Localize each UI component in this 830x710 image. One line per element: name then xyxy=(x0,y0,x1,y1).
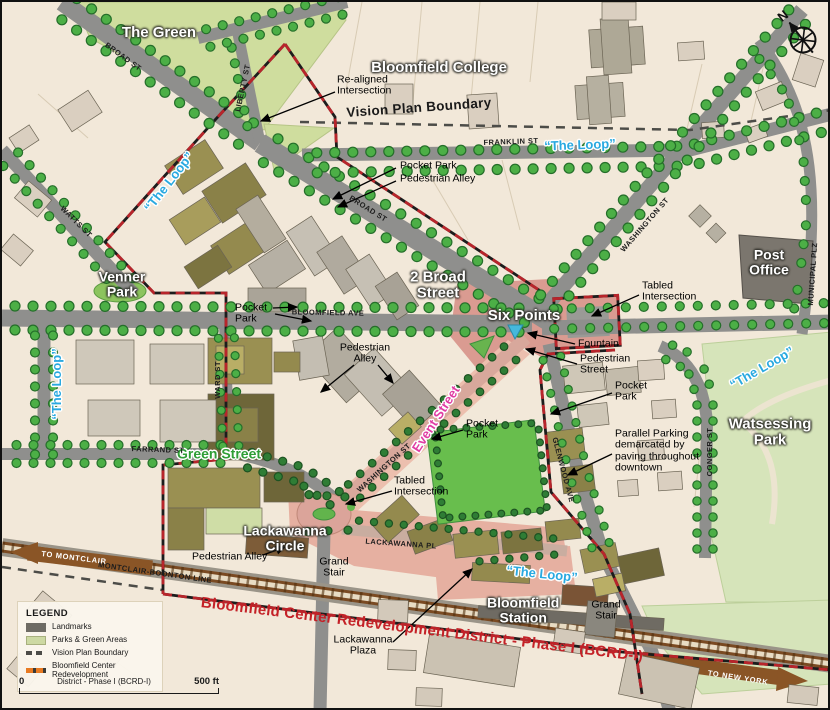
tree xyxy=(457,247,467,257)
tree xyxy=(46,459,55,468)
tree xyxy=(528,420,535,427)
tree xyxy=(46,301,56,311)
tree xyxy=(80,441,89,450)
tree xyxy=(370,326,380,336)
tree xyxy=(298,326,308,336)
tree xyxy=(428,406,436,414)
tree xyxy=(547,389,555,397)
tree xyxy=(510,164,520,174)
tree xyxy=(543,373,551,381)
tree xyxy=(510,144,520,154)
tree xyxy=(623,223,633,233)
tree xyxy=(370,519,377,526)
tree xyxy=(341,493,349,501)
tree xyxy=(701,100,711,110)
tree xyxy=(590,490,598,498)
tree xyxy=(433,447,440,454)
tree xyxy=(232,370,240,378)
tree xyxy=(568,479,576,487)
tree xyxy=(392,462,400,470)
tree xyxy=(760,32,770,42)
tree xyxy=(474,145,484,155)
tree xyxy=(512,356,520,364)
tree xyxy=(280,326,290,336)
tree xyxy=(300,482,308,490)
building xyxy=(584,601,617,638)
tree xyxy=(535,426,542,433)
tree xyxy=(63,441,72,450)
tree xyxy=(190,77,200,87)
tree xyxy=(500,367,508,375)
tree xyxy=(10,301,20,311)
tree xyxy=(268,9,277,18)
tree xyxy=(49,450,58,459)
tree xyxy=(31,365,40,374)
tree xyxy=(160,56,170,66)
tree xyxy=(350,181,360,191)
parks-swatch xyxy=(26,636,46,645)
tree xyxy=(700,365,708,373)
tree xyxy=(802,319,811,328)
tree xyxy=(685,370,693,378)
tree xyxy=(324,527,332,535)
tree xyxy=(416,441,424,449)
tree xyxy=(561,369,569,377)
tree xyxy=(622,323,631,332)
building xyxy=(385,84,413,114)
tree xyxy=(576,277,586,287)
building xyxy=(577,402,609,427)
tree xyxy=(366,223,376,233)
tree xyxy=(458,280,468,290)
tree xyxy=(279,457,287,465)
tree xyxy=(217,406,225,414)
building xyxy=(416,688,443,707)
vision-plan-map: N The GreenBloomfield CollegeVenner Park… xyxy=(0,0,830,710)
tree xyxy=(586,324,595,333)
tree xyxy=(255,30,264,39)
tree xyxy=(68,237,77,246)
tree xyxy=(289,22,298,31)
tree xyxy=(568,324,577,333)
tree xyxy=(576,435,584,443)
tree xyxy=(437,486,444,493)
tree xyxy=(235,442,243,450)
tree xyxy=(366,147,376,157)
tree xyxy=(344,526,352,534)
tree xyxy=(709,481,717,489)
tree xyxy=(427,261,437,271)
tree xyxy=(709,529,717,537)
tree xyxy=(392,438,400,446)
tree xyxy=(797,259,806,268)
tree xyxy=(709,433,717,441)
tree xyxy=(218,21,227,30)
tree xyxy=(519,284,529,294)
tree xyxy=(304,528,312,536)
tree xyxy=(536,290,546,300)
tree xyxy=(488,377,496,385)
tree xyxy=(189,108,199,118)
tree xyxy=(100,325,110,335)
tree xyxy=(316,302,326,312)
building xyxy=(150,344,204,384)
tree xyxy=(582,143,592,153)
tree xyxy=(404,428,412,436)
tree xyxy=(473,289,483,299)
tree xyxy=(234,424,242,432)
tree xyxy=(48,186,57,195)
tree xyxy=(496,303,506,313)
tree xyxy=(582,163,592,173)
building xyxy=(264,472,304,502)
tree xyxy=(102,275,111,284)
tree xyxy=(49,416,58,425)
tree xyxy=(71,211,80,220)
tree xyxy=(208,302,218,312)
tree xyxy=(521,554,528,561)
tree xyxy=(635,209,645,219)
tree xyxy=(528,164,538,174)
tree xyxy=(550,324,559,333)
tree xyxy=(94,236,103,245)
tree xyxy=(452,409,460,417)
tree xyxy=(539,465,546,472)
tree xyxy=(214,334,222,342)
tree xyxy=(226,302,236,312)
tree xyxy=(244,302,254,312)
tree xyxy=(424,303,434,313)
tree xyxy=(492,165,502,175)
tree xyxy=(709,401,717,409)
tree xyxy=(537,507,544,514)
tree xyxy=(595,222,605,232)
tree xyxy=(145,45,155,55)
tree xyxy=(693,513,701,521)
tree xyxy=(502,422,509,429)
tree xyxy=(82,223,91,232)
tree xyxy=(443,270,453,280)
tree xyxy=(478,303,488,313)
tree xyxy=(237,90,246,99)
tree xyxy=(564,291,574,301)
vision-boundary-swatch xyxy=(26,651,46,655)
tree xyxy=(503,275,513,285)
tree xyxy=(639,302,648,311)
tree xyxy=(31,416,40,425)
tree xyxy=(795,136,804,145)
tree xyxy=(658,322,667,331)
tree xyxy=(600,163,610,173)
building xyxy=(677,41,704,61)
tree xyxy=(219,97,229,107)
tree xyxy=(31,399,40,408)
tree xyxy=(709,497,717,505)
tree xyxy=(97,459,106,468)
tree xyxy=(128,274,137,283)
tree xyxy=(56,224,65,233)
tree xyxy=(693,401,701,409)
tree xyxy=(558,439,566,447)
tree xyxy=(368,483,376,491)
tree xyxy=(729,150,739,160)
tree xyxy=(352,326,362,336)
tree xyxy=(165,441,174,450)
tree xyxy=(559,263,569,273)
tree xyxy=(459,513,466,520)
scale-end: 500 ft xyxy=(194,676,219,687)
tree xyxy=(778,85,787,94)
tree xyxy=(439,512,446,519)
tree xyxy=(690,385,698,393)
tree xyxy=(427,228,437,238)
tree xyxy=(515,421,522,428)
tree xyxy=(438,166,448,176)
tree xyxy=(145,77,155,87)
tree xyxy=(524,508,531,515)
building xyxy=(274,352,300,372)
tree xyxy=(473,256,483,266)
tree xyxy=(381,200,391,210)
tree xyxy=(585,474,593,482)
tree xyxy=(659,182,669,192)
tree xyxy=(588,264,598,274)
tree xyxy=(476,364,484,372)
tree xyxy=(274,167,284,177)
tree xyxy=(298,302,308,312)
tree xyxy=(777,117,787,127)
tree xyxy=(535,534,542,541)
building xyxy=(657,471,682,491)
tree xyxy=(101,14,111,24)
tree xyxy=(611,237,621,247)
tree xyxy=(437,426,444,433)
tree xyxy=(49,365,58,374)
tree xyxy=(476,558,483,565)
tree xyxy=(747,145,757,155)
tree xyxy=(91,262,100,271)
tree xyxy=(131,67,141,77)
tree xyxy=(654,154,664,164)
tree xyxy=(460,303,470,313)
tree xyxy=(244,326,254,336)
tree xyxy=(37,173,46,182)
tree xyxy=(709,465,717,473)
building xyxy=(206,508,262,534)
tree xyxy=(668,341,676,349)
tree xyxy=(154,302,164,312)
tree xyxy=(476,424,483,431)
building xyxy=(586,75,611,124)
tree xyxy=(305,491,313,499)
tree xyxy=(370,302,380,312)
tree xyxy=(330,148,340,158)
tree xyxy=(258,158,268,168)
tree xyxy=(801,299,810,308)
tree xyxy=(172,302,182,312)
tree xyxy=(452,385,460,393)
tree xyxy=(588,544,596,552)
tree xyxy=(693,417,701,425)
tree xyxy=(118,301,128,311)
tree xyxy=(464,399,472,407)
tree xyxy=(175,98,185,108)
tree xyxy=(693,545,701,553)
tree xyxy=(222,38,231,47)
building xyxy=(88,400,140,436)
tree xyxy=(31,450,40,459)
building xyxy=(553,628,586,654)
tree xyxy=(442,327,452,337)
tree xyxy=(72,25,82,35)
tree xyxy=(438,499,445,506)
grand-stair-road-south xyxy=(320,532,324,710)
tree xyxy=(711,301,720,310)
tree xyxy=(438,146,448,156)
tree xyxy=(562,456,570,464)
tree xyxy=(116,56,126,66)
tree xyxy=(202,25,211,34)
tree xyxy=(689,114,699,124)
tree xyxy=(506,555,513,562)
tree xyxy=(33,199,42,208)
tree xyxy=(230,334,238,342)
building xyxy=(378,599,409,622)
venner-fountain-dot xyxy=(120,291,125,296)
tree xyxy=(799,240,808,249)
tree xyxy=(117,261,126,270)
tree xyxy=(309,469,317,477)
building xyxy=(160,400,216,442)
tree xyxy=(116,25,126,35)
tree xyxy=(573,495,581,503)
tree xyxy=(316,326,326,336)
tree xyxy=(784,319,793,328)
tree xyxy=(29,459,38,468)
tree xyxy=(160,87,170,97)
tree xyxy=(235,17,244,26)
scale-bar-line xyxy=(19,688,219,694)
building xyxy=(168,468,260,508)
tree xyxy=(729,301,738,310)
tree xyxy=(154,326,164,336)
bloomfield-ave-west xyxy=(2,318,532,324)
tree xyxy=(204,87,214,97)
tree xyxy=(368,459,376,467)
tree xyxy=(420,166,430,176)
tree xyxy=(742,126,752,136)
tree xyxy=(63,459,72,468)
tree xyxy=(435,460,442,467)
tree xyxy=(488,265,498,275)
tree xyxy=(693,497,701,505)
tree xyxy=(25,161,34,170)
tree xyxy=(605,539,613,547)
tree xyxy=(114,441,123,450)
tree xyxy=(244,464,252,472)
tree xyxy=(445,525,452,532)
tree xyxy=(182,459,191,468)
tree xyxy=(564,385,572,393)
tree xyxy=(800,177,809,186)
tree xyxy=(490,530,497,537)
tree xyxy=(580,452,588,460)
tree xyxy=(748,320,757,329)
tree xyxy=(217,388,225,396)
tree xyxy=(355,517,362,524)
tree xyxy=(215,352,223,360)
tree xyxy=(724,130,734,140)
tree xyxy=(567,304,576,313)
tree xyxy=(520,532,527,539)
tree xyxy=(259,468,267,476)
tree xyxy=(676,322,685,331)
tree xyxy=(595,506,603,514)
tree xyxy=(488,353,496,361)
tree xyxy=(799,158,808,167)
tree xyxy=(546,164,556,174)
tree xyxy=(10,174,19,183)
tree xyxy=(397,242,407,252)
tree xyxy=(705,380,713,388)
tree xyxy=(536,552,543,559)
tree xyxy=(366,167,376,177)
tree xyxy=(326,501,334,509)
tree xyxy=(272,26,281,35)
tree xyxy=(464,375,472,383)
building xyxy=(467,93,499,129)
building xyxy=(605,366,642,395)
tree xyxy=(693,449,701,457)
tree xyxy=(219,129,229,139)
tree xyxy=(430,524,437,531)
building xyxy=(76,340,134,384)
tree xyxy=(290,477,298,485)
tree xyxy=(199,441,208,450)
tree xyxy=(219,442,227,450)
tree xyxy=(175,66,185,76)
legend-title: LEGEND xyxy=(26,608,156,619)
tree xyxy=(790,117,799,126)
tree xyxy=(234,75,243,84)
tree xyxy=(381,233,391,243)
building xyxy=(617,479,638,496)
tree xyxy=(49,382,58,391)
tree xyxy=(45,212,54,221)
tree xyxy=(550,535,557,542)
tree xyxy=(400,521,407,528)
tree xyxy=(654,142,664,152)
tree xyxy=(216,459,225,468)
tree xyxy=(31,348,40,357)
tree xyxy=(49,399,58,408)
tree xyxy=(402,166,412,176)
legend-item-parks: Parks & Green Areas xyxy=(26,636,156,645)
tree xyxy=(82,325,92,335)
tree xyxy=(583,528,591,536)
tree xyxy=(764,141,774,151)
tree xyxy=(737,59,747,69)
tree xyxy=(476,388,484,396)
tree xyxy=(694,142,704,152)
tree xyxy=(446,514,453,521)
tree xyxy=(352,302,362,312)
tree xyxy=(793,285,802,294)
watsessing-park-area xyxy=(702,332,830,602)
tree xyxy=(585,304,594,313)
tree xyxy=(600,143,610,153)
tree xyxy=(82,301,92,311)
